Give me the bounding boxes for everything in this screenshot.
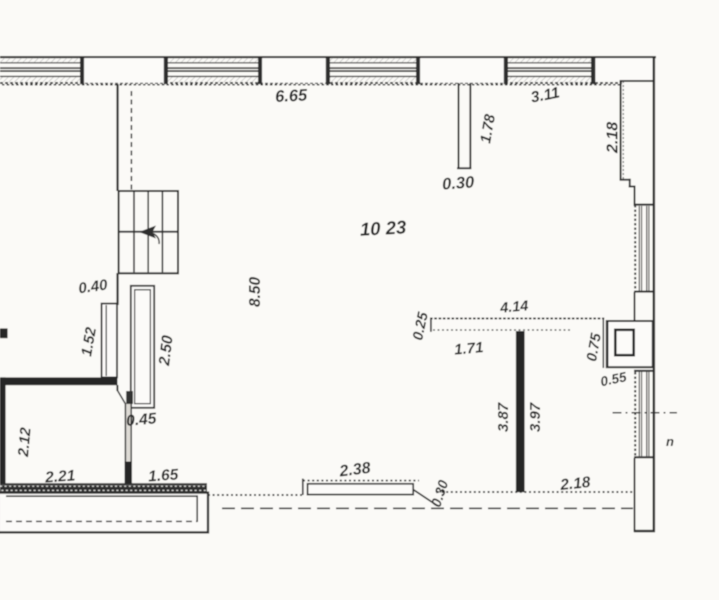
svg-text:0.45: 0.45	[125, 410, 157, 430]
svg-text:2.12: 2.12	[15, 426, 35, 458]
svg-text:2.21: 2.21	[44, 467, 76, 486]
svg-text:6.65: 6.65	[275, 86, 309, 106]
svg-text:8.50: 8.50	[247, 276, 264, 307]
svg-text:2.18: 2.18	[605, 122, 622, 154]
svg-text:0.30: 0.30	[442, 173, 476, 193]
svg-text:10 23: 10 23	[359, 216, 407, 239]
svg-text:2.18: 2.18	[558, 474, 591, 494]
svg-text:1.65: 1.65	[148, 466, 180, 485]
svg-text:1.71: 1.71	[454, 339, 485, 358]
svg-text:3.97: 3.97	[527, 402, 544, 432]
svg-text:4.14: 4.14	[499, 298, 530, 316]
svg-text:3.87: 3.87	[495, 402, 512, 432]
svg-text:n: n	[666, 434, 674, 449]
